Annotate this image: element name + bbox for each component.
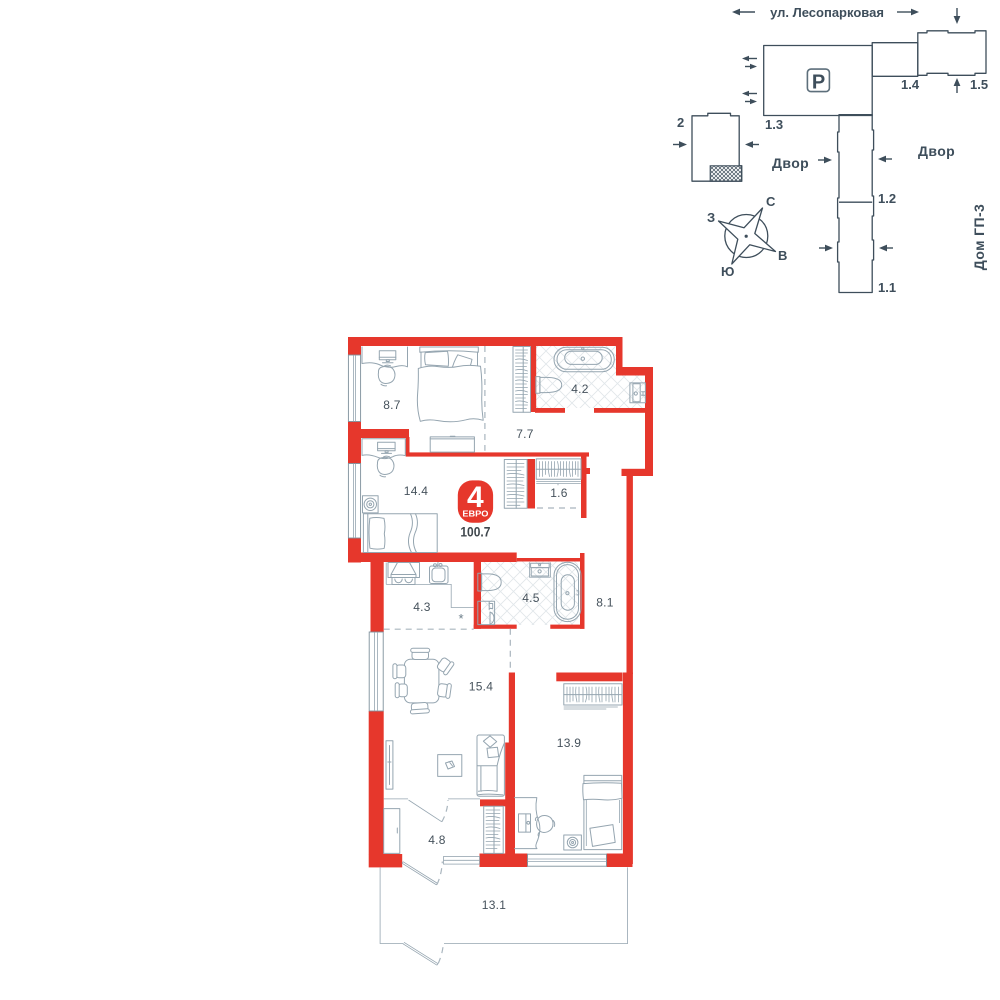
svg-text:13.1: 13.1: [482, 898, 507, 912]
svg-text:2: 2: [677, 115, 684, 130]
svg-text:Дом ГП-3: Дом ГП-3: [971, 204, 987, 270]
svg-text:1.4: 1.4: [901, 77, 920, 92]
svg-text:4.2: 4.2: [571, 382, 589, 396]
svg-text:8.1: 8.1: [596, 596, 614, 610]
svg-text:15.4: 15.4: [469, 680, 494, 694]
svg-text:4.8: 4.8: [428, 833, 446, 847]
svg-text:ул. Лесопарковая: ул. Лесопарковая: [770, 5, 884, 20]
svg-text:*: *: [459, 611, 464, 626]
svg-text:1.2: 1.2: [878, 191, 896, 206]
svg-text:13.9: 13.9: [557, 736, 582, 750]
svg-text:Двор: Двор: [772, 155, 809, 171]
svg-text:ЕВРО: ЕВРО: [462, 509, 488, 518]
svg-text:Двор: Двор: [918, 143, 955, 159]
svg-text:8.7: 8.7: [383, 398, 401, 412]
svg-text:1.3: 1.3: [765, 117, 783, 132]
svg-text:4.5: 4.5: [522, 591, 540, 605]
svg-text:14.4: 14.4: [404, 484, 429, 498]
svg-text:В: В: [778, 248, 787, 263]
svg-text:4.3: 4.3: [413, 600, 431, 614]
svg-text:1.6: 1.6: [550, 486, 568, 500]
svg-text:Ю: Ю: [721, 264, 734, 279]
svg-text:P: P: [812, 71, 825, 93]
svg-text:1.5: 1.5: [970, 77, 988, 92]
svg-text:100.7: 100.7: [460, 524, 490, 539]
svg-text:З: З: [707, 210, 715, 225]
svg-text:7.7: 7.7: [516, 427, 534, 441]
svg-text:1.1: 1.1: [878, 280, 896, 295]
svg-text:С: С: [766, 194, 776, 209]
